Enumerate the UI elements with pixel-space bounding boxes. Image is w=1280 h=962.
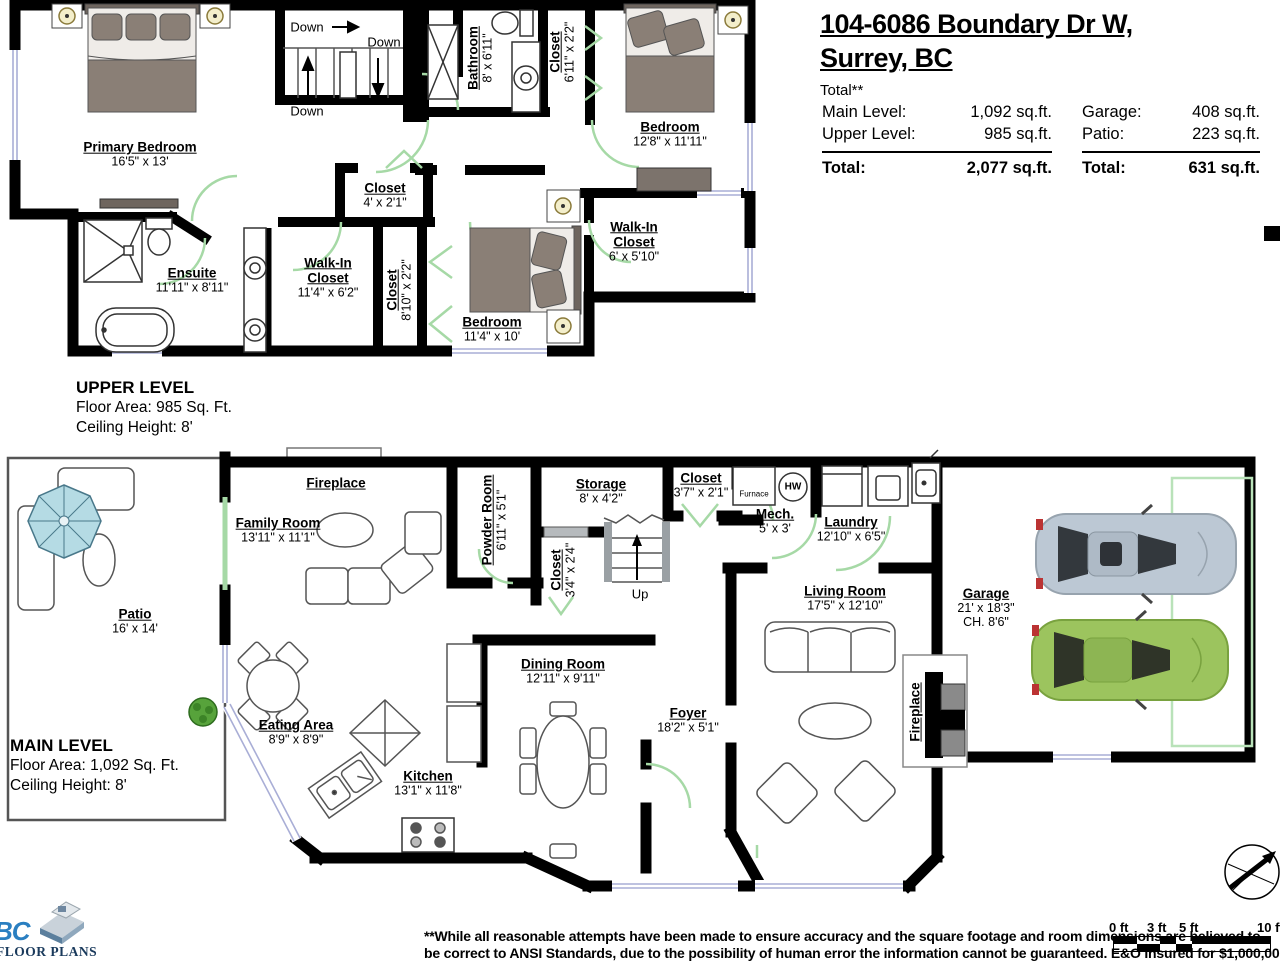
table-row: Garage: 408 sq.ft.	[1082, 103, 1260, 122]
upper-level-info: UPPER LEVEL Floor Area: 985 Sq. Ft. Ceil…	[76, 377, 232, 437]
main-level-info: MAIN LEVEL Floor Area: 1,092 Sq. Ft. Cei…	[10, 735, 179, 795]
table-total-row: Total: 2,077 sq.ft.	[822, 159, 1052, 178]
room-label-closet-small: Closet 3'4" x 2'4"	[550, 543, 579, 598]
furnace-label: Furnace	[739, 490, 768, 499]
room-label-family-room: Family Room 13'11" x 11'1"	[236, 517, 321, 546]
room-label-closet-top: Closet 6'11" x 2'2"	[549, 22, 578, 83]
room-label-foyer: Foyer 18'2" x 5'1"	[657, 707, 719, 736]
logo-text: FLOOR PLANS	[0, 944, 97, 960]
room-label-bedroom-bottom: Bedroom 11'4" x 10'	[462, 316, 521, 345]
room-label-fireplace-living: Fireplace	[909, 682, 924, 741]
room-label-closet-hall-main: Closet 3'7" x 2'1"	[674, 472, 729, 501]
room-label-storage: Storage 8' x 4'2"	[576, 478, 626, 507]
room-label-ensuite: Ensuite 11'11" x 8'11"	[156, 267, 229, 296]
table-row: Upper Level: 985 sq.ft.	[822, 125, 1052, 144]
room-label-walkin-right: Walk-In Closet 6' x 5'10"	[591, 220, 677, 263]
edge-mark	[1264, 226, 1280, 241]
room-label-fireplace-family: Fireplace	[306, 477, 365, 492]
room-label-dining-room: Dining Room 12'11" x 9'11"	[521, 658, 605, 687]
room-label-powder-room: Powder Room 6'11" x 5'1"	[481, 475, 510, 566]
stair-down-label: Down	[290, 20, 323, 35]
room-label-bedroom-right: Bedroom 12'8" x 11'11"	[633, 121, 707, 150]
stair-down-label: Down	[290, 104, 323, 119]
divider	[822, 151, 1052, 153]
room-label-closet-hall: Closet 4' x 2'1"	[363, 182, 406, 211]
logo-brand: BC	[0, 916, 30, 947]
table-total-row: Total: 631 sq.ft.	[1082, 159, 1260, 178]
room-label-closet-mid: Closet 8'10" x 2'2"	[386, 259, 415, 321]
room-label-mech: Mech. 5' x 3'	[756, 508, 794, 537]
square-footage-table: Main Level: 1,092 sq.ft. Upper Level: 98…	[820, 101, 1280, 191]
room-label-laundry: Laundry 12'10" x 6'5"	[817, 516, 886, 545]
room-label-bathro om: Bathroom 8' x 6'11"	[467, 26, 496, 90]
stair-down-label: Down	[367, 35, 400, 50]
room-label-primary-bedroom: Primary Bedroom 16'5" x 13'	[83, 141, 196, 170]
hot-water-tank-label: HW	[785, 482, 802, 493]
room-label-kitchen: Kitchen 13'1" x 11'8"	[394, 770, 462, 799]
room-label-living-room: Living Room 17'5" x 12'10"	[804, 585, 886, 614]
room-label-garage: Garage 21' x 18'3" CH. 8'6"	[957, 587, 1014, 629]
disclaimer-text: **While all reasonable attempts have bee…	[424, 928, 1280, 962]
header-block: 104-6086 Boundary Dr W, Surrey, BC Total…	[820, 8, 1280, 191]
stair-up-label: Up	[632, 587, 649, 602]
divider	[1082, 151, 1260, 153]
table-row: Patio: 223 sq.ft.	[1082, 125, 1260, 144]
room-label-walkin-primary: Walk-In Closet 11'4" x 6'2"	[285, 256, 371, 299]
table-row: Main Level: 1,092 sq.ft.	[822, 103, 1052, 122]
total-note: Total**	[820, 82, 1280, 99]
address-line2: Surrey, BC	[820, 42, 1280, 76]
room-label-eating-area: Eating Area 8'9" x 8'9"	[259, 719, 334, 748]
room-label-patio: Patio 16' x 14'	[112, 608, 158, 637]
address-line1: 104-6086 Boundary Dr W,	[820, 8, 1280, 42]
